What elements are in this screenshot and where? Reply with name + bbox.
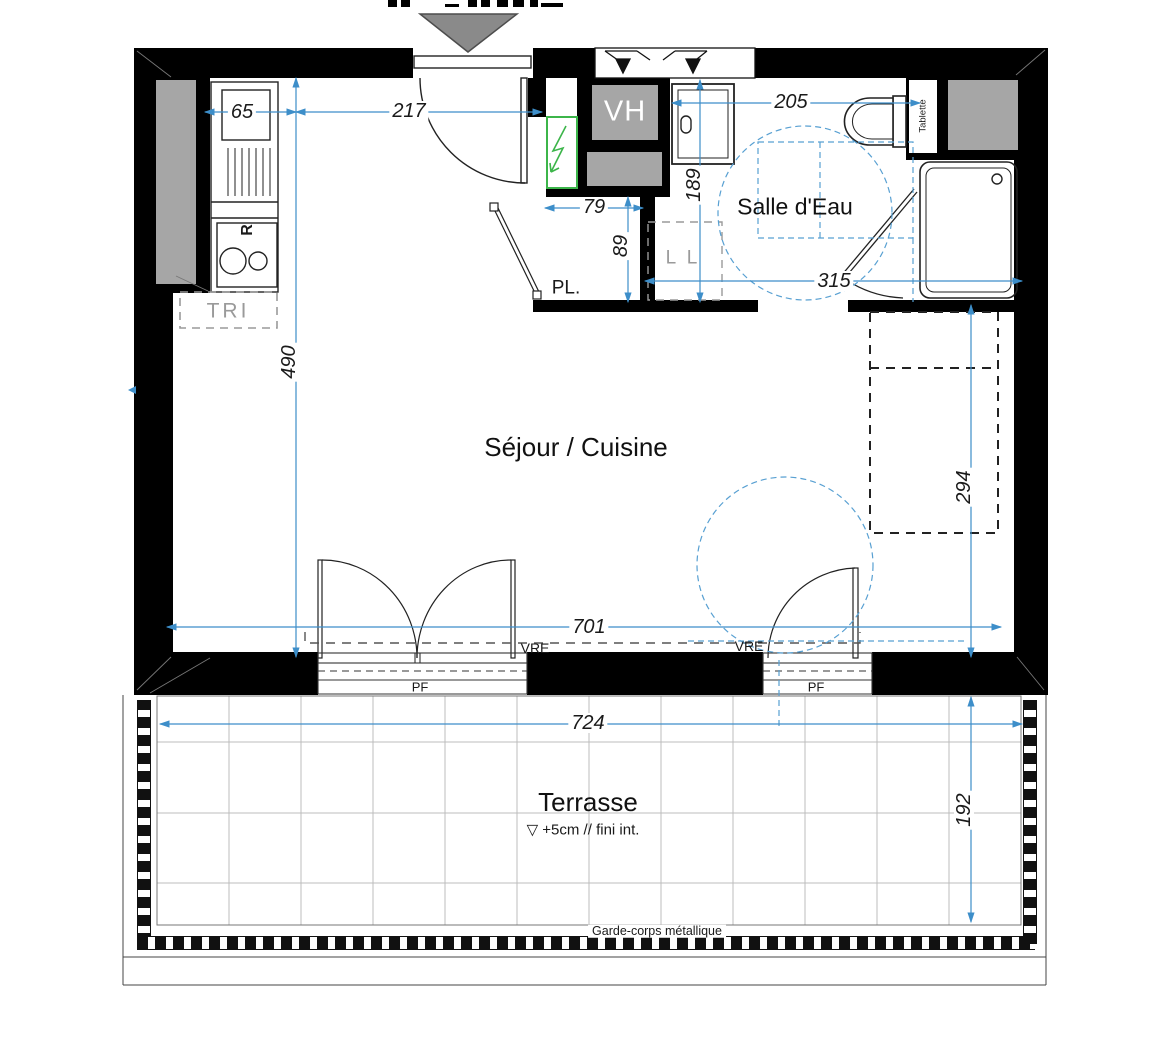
bottom-wall-left [134,652,318,695]
bath-west-wall [640,197,655,312]
burner-small [249,252,267,270]
tri-label: TRI [207,301,250,322]
pf-label-1: PF [412,681,429,694]
vent-arrow-2 [663,51,707,73]
terrace-level-note: ▽ +5cm // fini int. [527,823,640,838]
shelf-label: Tablette [918,99,928,132]
entry-door [414,56,531,183]
vent-arrows [595,48,755,78]
french-door-left-window [318,560,515,658]
dim-294: 294 [954,467,974,506]
level-symbol: ▽ [527,822,539,839]
burner-large [220,248,246,274]
entry-door-swing [420,78,525,183]
vent-arrow-1 [605,51,650,73]
fridge-label: R [240,224,256,236]
entry-jamb [528,78,546,117]
bath-duct [948,80,1018,150]
floor-plan: Séjour / Cuisine Salle d'Eau Terrasse ▽ … [0,0,1166,1052]
shower-drain [992,174,1002,184]
electrical-panel [546,116,578,189]
bottom-wall-mid [527,652,763,695]
bed-outline [870,312,998,533]
bath-south-wall-right [848,300,1014,312]
level-text: +5cm // fini int. [542,822,639,839]
dim-490: 490 [279,342,299,381]
closet-door [490,203,541,299]
top-wall-right [755,48,1048,78]
dim-701: 701 [569,617,608,637]
sink-drainboard [228,148,270,196]
top-wall-mid [533,48,595,78]
vh-label: VH [604,98,646,127]
dim-315: 315 [814,271,853,291]
entry-marker-triangle [420,14,517,52]
french-door-right-window [768,568,858,658]
dim-205: 205 [771,92,810,112]
dim-724: 724 [568,713,607,733]
dim-192: 192 [954,790,974,829]
vre-label-2: VRE [735,639,764,653]
bath-south-wall-left [533,300,758,312]
terrace-railing-bottom [137,936,1035,950]
washer-label: L L [666,249,701,268]
entry-door-sill [414,56,531,68]
washbasin [672,84,734,164]
bottom-wall-right [872,652,1048,695]
shaft-duct-2 [587,152,662,186]
pf-label-2: PF [808,681,825,694]
terrace-railing-right [1023,700,1037,944]
dim-217: 217 [389,101,428,121]
vre-label-1: VRE [521,641,550,655]
toilet [844,96,906,147]
dim-79: 79 [580,197,608,217]
room-label-bathroom: Salle d'Eau [737,196,853,219]
dim-189: 189 [684,165,704,204]
kitchen-duct [156,80,196,284]
room-label-terrace: Terrasse [538,789,638,815]
terrace-railing-left [137,700,151,944]
room-label-living: Séjour / Cuisine [484,434,668,460]
dim-89: 89 [611,232,631,260]
shower-tray [920,162,1017,298]
closet-label: PL. [552,279,581,298]
railing-label: Garde-corps métallique [588,925,726,938]
dim-65: 65 [228,102,256,122]
entry-door-leaf [521,78,527,183]
